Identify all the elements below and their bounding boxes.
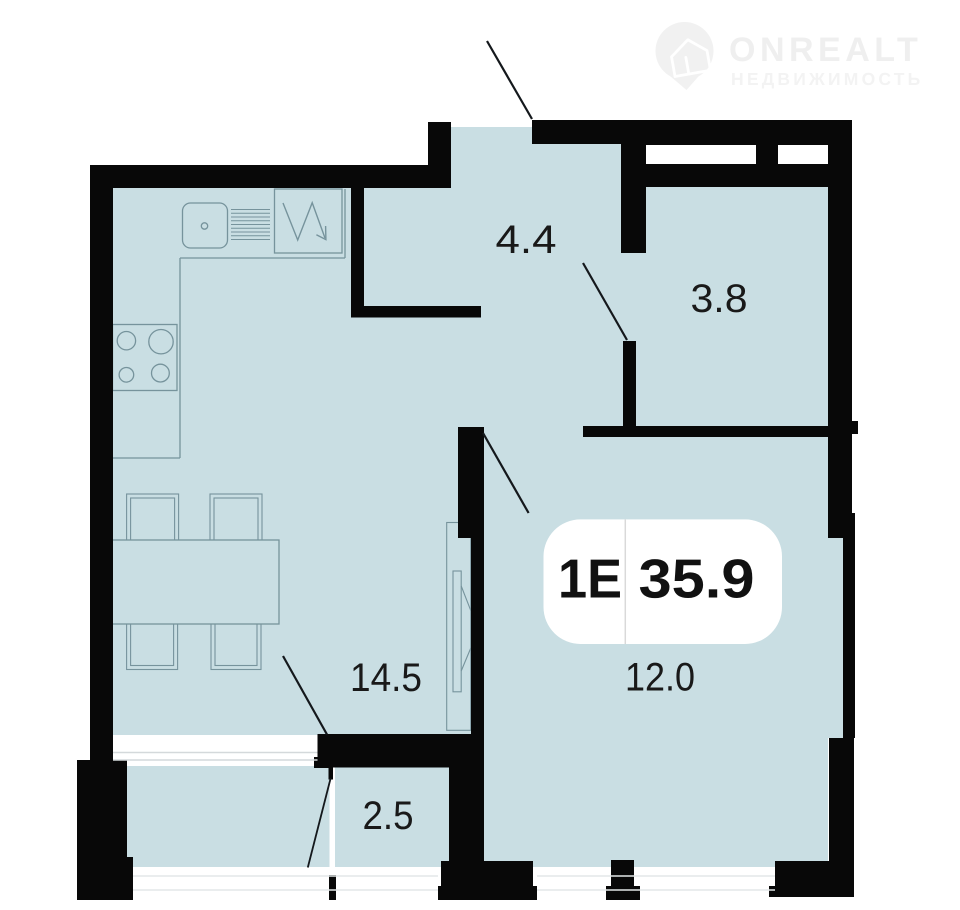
svg-text:4.4: 4.4 <box>496 218 557 262</box>
svg-text:НЕДВИЖИМОСТЬ: НЕДВИЖИМОСТЬ <box>731 69 923 89</box>
svg-text:14.5: 14.5 <box>350 656 422 700</box>
svg-text:3.8: 3.8 <box>691 277 748 321</box>
svg-text:2.5: 2.5 <box>363 794 414 838</box>
svg-text:12.0: 12.0 <box>625 656 695 700</box>
svg-text:ONREALT: ONREALT <box>729 31 922 69</box>
svg-text:1Е: 1Е <box>558 548 622 610</box>
svg-text:35.9: 35.9 <box>639 548 755 610</box>
